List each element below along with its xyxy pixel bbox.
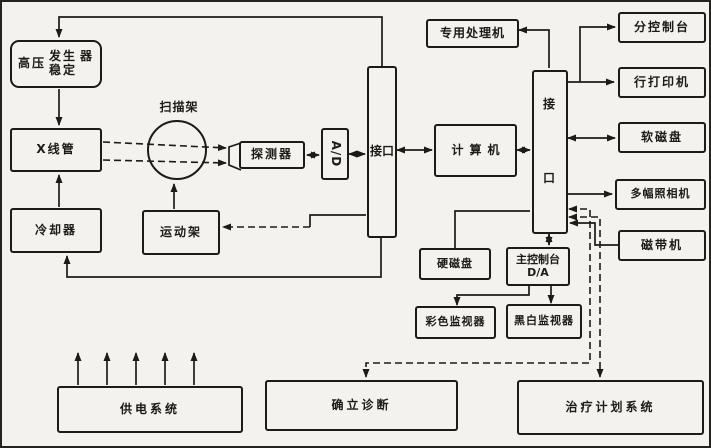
sub-console-box: 分控制台 (618, 12, 706, 43)
interface2-box: 接 口 (532, 70, 568, 234)
color-monitor-box: 彩色监视器 (415, 306, 496, 339)
multi-camera-box: 多幅照相机 (615, 179, 706, 210)
floppy-disk-box: 软磁盘 (618, 122, 706, 153)
hv-label-stack: 发生 稳定 (49, 50, 77, 78)
gantry-label: 扫描架 (148, 98, 210, 115)
xray-tube-box: X线管 (10, 128, 102, 172)
hard-disk-label: 硬磁盘 (437, 258, 473, 271)
computer-label: 计算机 (451, 144, 505, 158)
special-processor-label: 专用处理机 (440, 27, 505, 41)
main-console-box: 主控制台 D/A (506, 247, 570, 286)
bw-monitor-label: 黑白监视器 (514, 315, 574, 328)
power-system-box: 供电系统 (57, 386, 243, 433)
line-printer-box: 行打印机 (618, 67, 706, 98)
computer-box: 计算机 (434, 124, 517, 177)
hv-label-bottom: 稳定 (49, 64, 77, 78)
tape-drive-box: 磁带机 (618, 230, 706, 261)
adc-box: A/D (321, 128, 349, 180)
motion-frame-box: 运动架 (142, 210, 220, 255)
interface1-label: 接口 (370, 145, 394, 159)
bw-monitor-box: 黑白监视器 (506, 304, 582, 339)
line-printer-label: 行打印机 (634, 76, 690, 90)
treatment-planning-box: 治疗计划系统 (517, 380, 704, 435)
tape-drive-label: 磁带机 (641, 239, 683, 253)
special-processor-box: 专用处理机 (426, 19, 519, 48)
motion-frame-label: 运动架 (160, 226, 202, 240)
interface2-label-bottom: 口 (543, 172, 557, 186)
hv-label-right: 器 (80, 50, 94, 64)
hard-disk-box: 硬磁盘 (419, 248, 491, 280)
interface1-box: 接口 (367, 66, 397, 238)
main-console-label-line1: 主控制台 (516, 254, 560, 267)
hv-label-left: 高压 (18, 57, 46, 71)
interface2-label-top: 接 (543, 98, 557, 112)
color-monitor-label: 彩色监视器 (426, 316, 486, 329)
treatment-planning-label: 治疗计划系统 (565, 401, 655, 415)
multi-camera-label: 多幅照相机 (631, 188, 691, 201)
hv-generator-stabilizer-box: 高压 发生 稳定 器 (10, 40, 102, 88)
cooler-label: 冷却器 (35, 224, 77, 238)
gantry-circle (147, 120, 207, 180)
sub-console-label: 分控制台 (634, 21, 690, 35)
ct-system-block-diagram: 高压 发生 稳定 器 X线管 冷却器 扫描架 运动架 探测器 A/D 接口 计算… (0, 0, 711, 448)
hv-label-top: 发生 (49, 50, 77, 64)
floppy-disk-label: 软磁盘 (641, 131, 683, 145)
power-system-label: 供电系统 (120, 403, 180, 417)
main-console-label-line2: D/A (527, 267, 549, 280)
diagnosis-label: 确立诊断 (331, 399, 391, 413)
adc-label: A/D (328, 141, 342, 168)
detector-box: 探测器 (239, 141, 305, 169)
xray-tube-label: X线管 (36, 143, 75, 157)
detector-label: 探测器 (251, 148, 293, 162)
cooler-box: 冷却器 (10, 208, 102, 253)
diagnosis-box: 确立诊断 (265, 380, 458, 431)
